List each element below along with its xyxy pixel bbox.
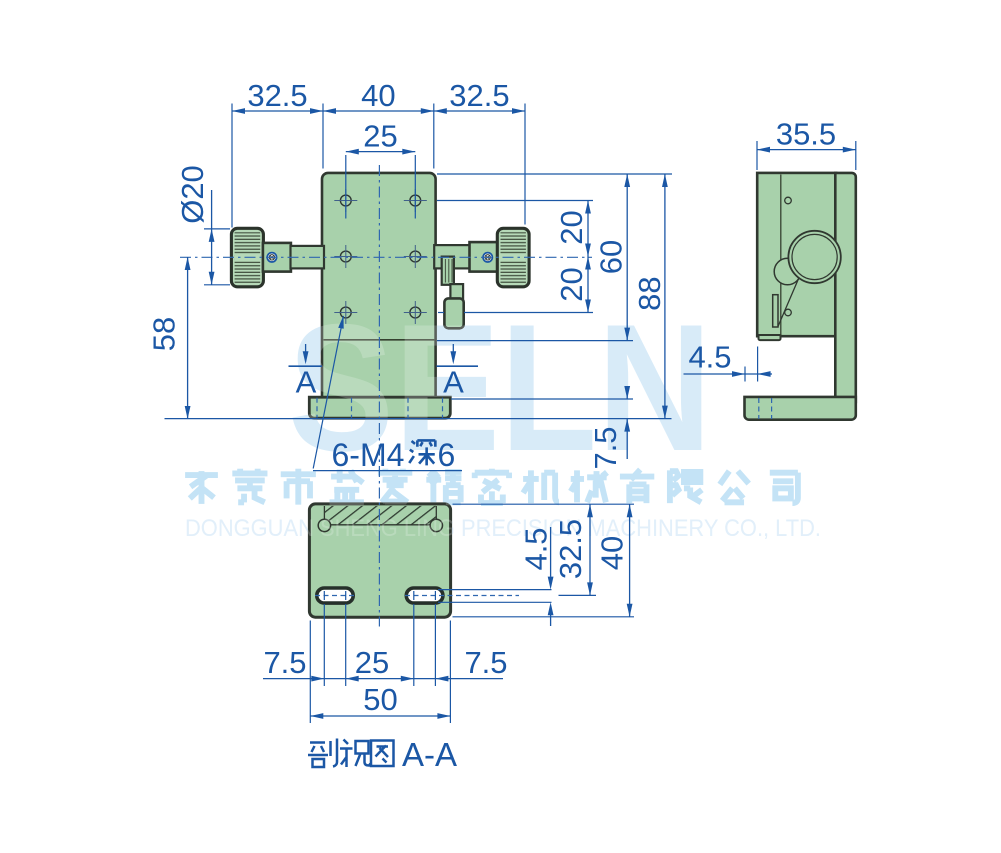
svg-text:7.5: 7.5 (464, 645, 507, 680)
svg-text:A: A (296, 365, 317, 400)
svg-text:32.5: 32.5 (553, 519, 588, 579)
svg-text:58: 58 (147, 317, 182, 351)
svg-text:20: 20 (554, 210, 589, 244)
svg-text:A-A: A-A (402, 736, 457, 773)
svg-text:25: 25 (363, 119, 397, 154)
svg-text:7.5: 7.5 (263, 645, 306, 680)
svg-text:6-M4: 6-M4 (332, 437, 405, 473)
svg-text:4.5: 4.5 (688, 340, 731, 375)
svg-text:A: A (443, 365, 464, 400)
svg-text:32.5: 32.5 (449, 78, 509, 113)
svg-text:40: 40 (361, 78, 395, 113)
svg-text:88: 88 (632, 276, 667, 310)
svg-text:Ø20: Ø20 (175, 165, 210, 224)
svg-text:6: 6 (438, 437, 456, 473)
svg-text:60: 60 (593, 240, 628, 274)
svg-text:35.5: 35.5 (776, 117, 836, 152)
svg-text:32.5: 32.5 (247, 78, 307, 113)
svg-text:7.5: 7.5 (588, 426, 623, 469)
svg-text:4.5: 4.5 (519, 527, 554, 570)
svg-text:25: 25 (355, 645, 389, 680)
svg-text:20: 20 (554, 267, 589, 301)
svg-text:40: 40 (595, 536, 630, 570)
svg-text:50: 50 (363, 682, 397, 717)
